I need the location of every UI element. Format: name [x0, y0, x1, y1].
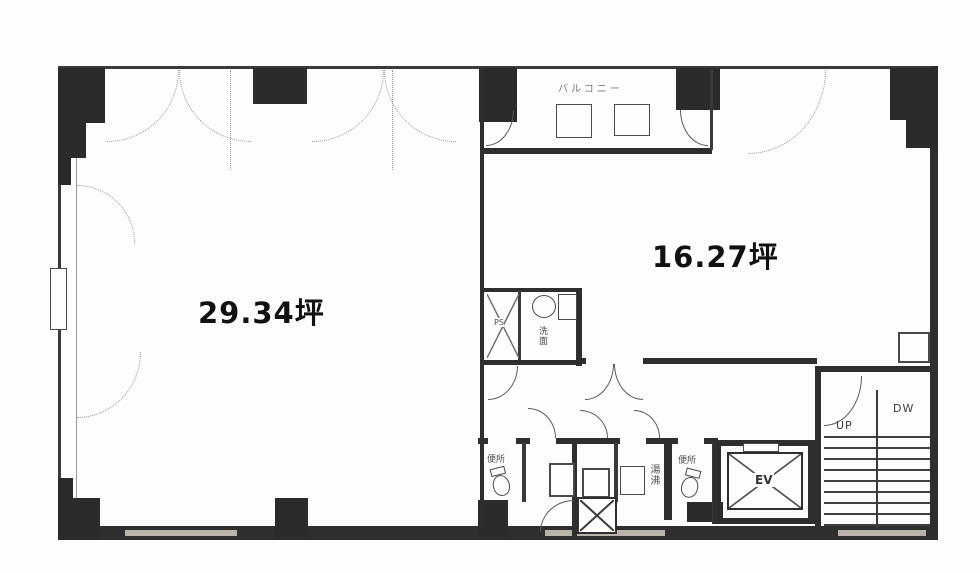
window-segment-bottom-1	[125, 530, 237, 536]
left-room-area-label: 29.34坪	[198, 290, 325, 332]
balcony-right-wall	[710, 70, 713, 150]
pillar-top-left-foot	[58, 158, 71, 185]
stairwell-left-wall	[815, 366, 821, 540]
duct-shaft-x-icon	[580, 500, 614, 531]
corridor-door-arc-1	[585, 364, 614, 400]
ev-shaft-bottom-wall	[713, 518, 816, 524]
balcony-equipment-pad-1	[556, 104, 592, 138]
partition-main-vertical	[480, 68, 484, 528]
ev-door-sill	[743, 443, 779, 452]
sink-icon	[532, 295, 556, 318]
utility-fixture	[549, 463, 575, 497]
water-heater-counter	[620, 466, 645, 495]
pillar-top-left-leg	[58, 123, 86, 158]
toilet-right-label: 便所	[678, 453, 696, 466]
dotted-door-arc-left-wall-2	[77, 352, 141, 418]
service-top-wall-seg-4	[646, 438, 678, 444]
utility-door-arc	[540, 500, 574, 532]
right-room-area-label: 16.27坪	[652, 234, 779, 276]
pillar-top-mid	[253, 68, 307, 104]
stairs-center-rail	[876, 390, 878, 528]
pillar-top-left	[58, 68, 105, 123]
core-top-wall	[484, 288, 580, 292]
balcony-bottom-wall	[484, 148, 712, 154]
toilet-left-icon	[485, 464, 516, 501]
service-divider-4	[664, 442, 672, 520]
dotted-door-arc-1	[107, 70, 179, 142]
ev-shaft-left-wall	[713, 440, 721, 524]
pillar-balcony-right	[676, 68, 720, 110]
service-door-arc-1	[528, 408, 556, 438]
service-divider-1	[522, 442, 526, 502]
dotted-door-leaf-line-1	[230, 70, 231, 170]
stairs-up-label: UP	[836, 419, 853, 432]
pillar-top-right	[890, 68, 938, 120]
service-door-arc-3	[634, 410, 660, 438]
wash-counter	[558, 294, 577, 320]
corridor-door-arc-2	[614, 364, 643, 400]
right-wall-duct	[898, 332, 930, 363]
service-top-wall-seg-3	[556, 438, 620, 444]
toilet-left-label: 便所	[487, 452, 505, 465]
stairwell-top-wall	[815, 366, 938, 372]
service-door-arc-2	[580, 410, 608, 438]
floor-plan: PS 洗面 便所 湯沸 便所	[0, 0, 980, 573]
dotted-door-arc-right-room	[748, 70, 826, 154]
balcony-label: バルコニー	[558, 80, 623, 95]
dotted-door-arc-2	[179, 70, 251, 142]
pillar-top-right-leg	[906, 120, 938, 148]
washbasin-label: 洗面	[536, 326, 549, 346]
balcony-equipment-pad-2	[614, 104, 650, 136]
left-wall-window	[50, 268, 67, 330]
balcony-door-arc-right	[680, 110, 708, 146]
balcony-door-arc-left	[486, 110, 514, 146]
water-heater-label: 湯沸	[646, 464, 661, 486]
corridor-top-wall-seg-2	[643, 358, 817, 364]
pillar-bottom-mid	[275, 498, 308, 538]
core-bottom-wall	[484, 360, 580, 365]
core-door-arc	[488, 366, 518, 400]
pillar-bottom-left	[58, 498, 100, 540]
dotted-door-arc-left-wall-1	[77, 185, 135, 243]
dotted-door-leaf-line-2	[392, 70, 393, 170]
dotted-door-arc-4	[384, 70, 456, 142]
stairs-down-label: DW	[893, 402, 914, 415]
dotted-door-arc-3	[312, 70, 384, 142]
service-top-wall-seg-1	[478, 438, 488, 444]
toilet-right-icon	[675, 466, 706, 503]
service-divider-3	[614, 442, 618, 502]
pipe-shaft-label: PS	[494, 318, 504, 327]
elevator-label: EV	[753, 473, 774, 487]
window-segment-bottom-3	[838, 530, 926, 536]
duct-upper-box	[582, 468, 610, 498]
